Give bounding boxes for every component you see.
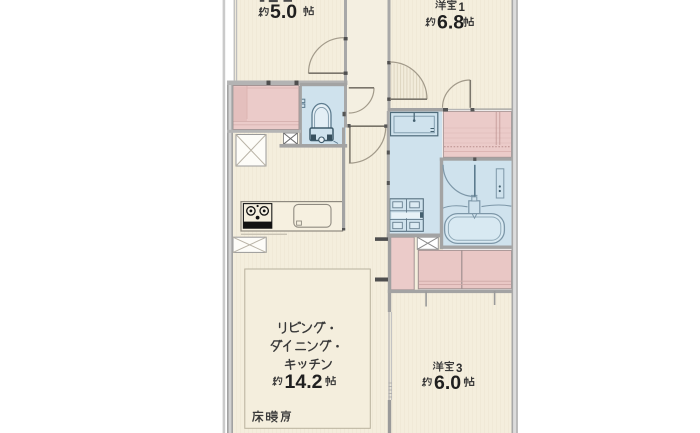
svg-text:6.8: 6.8	[437, 11, 464, 33]
svg-text:5.0: 5.0	[270, 1, 297, 23]
svg-text:14.2: 14.2	[285, 371, 323, 393]
svg-text:6.0: 6.0	[434, 372, 461, 394]
